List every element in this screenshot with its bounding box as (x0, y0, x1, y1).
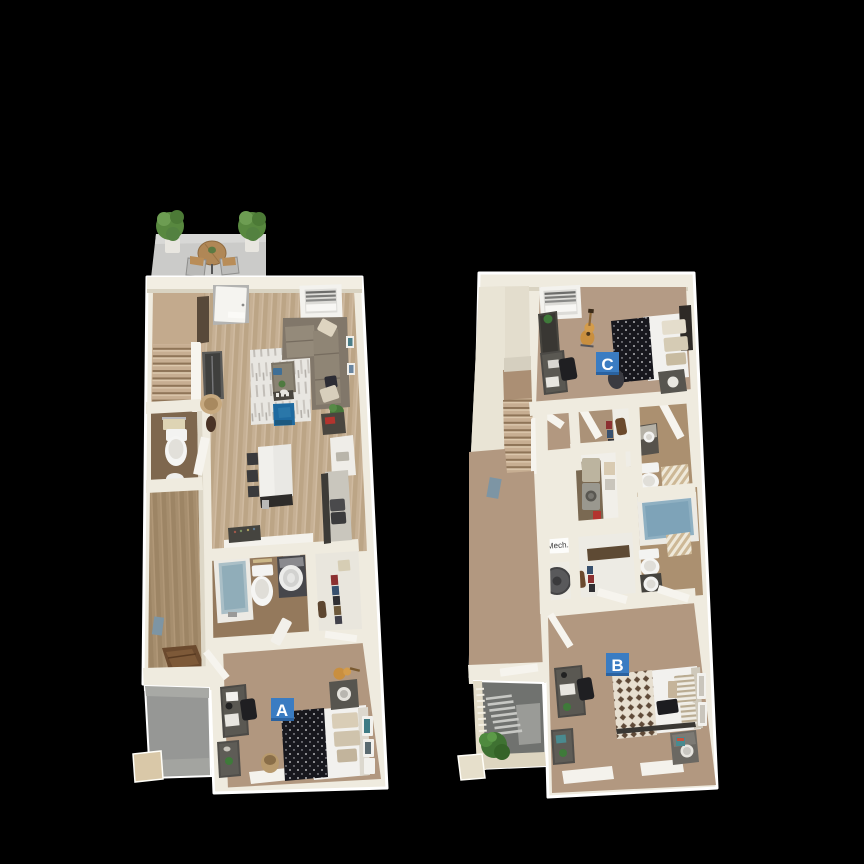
svg-text:Mech.: Mech. (547, 540, 569, 550)
svg-text:A: A (276, 701, 288, 720)
svg-text:B: B (611, 656, 623, 675)
svg-text:C: C (601, 355, 613, 374)
